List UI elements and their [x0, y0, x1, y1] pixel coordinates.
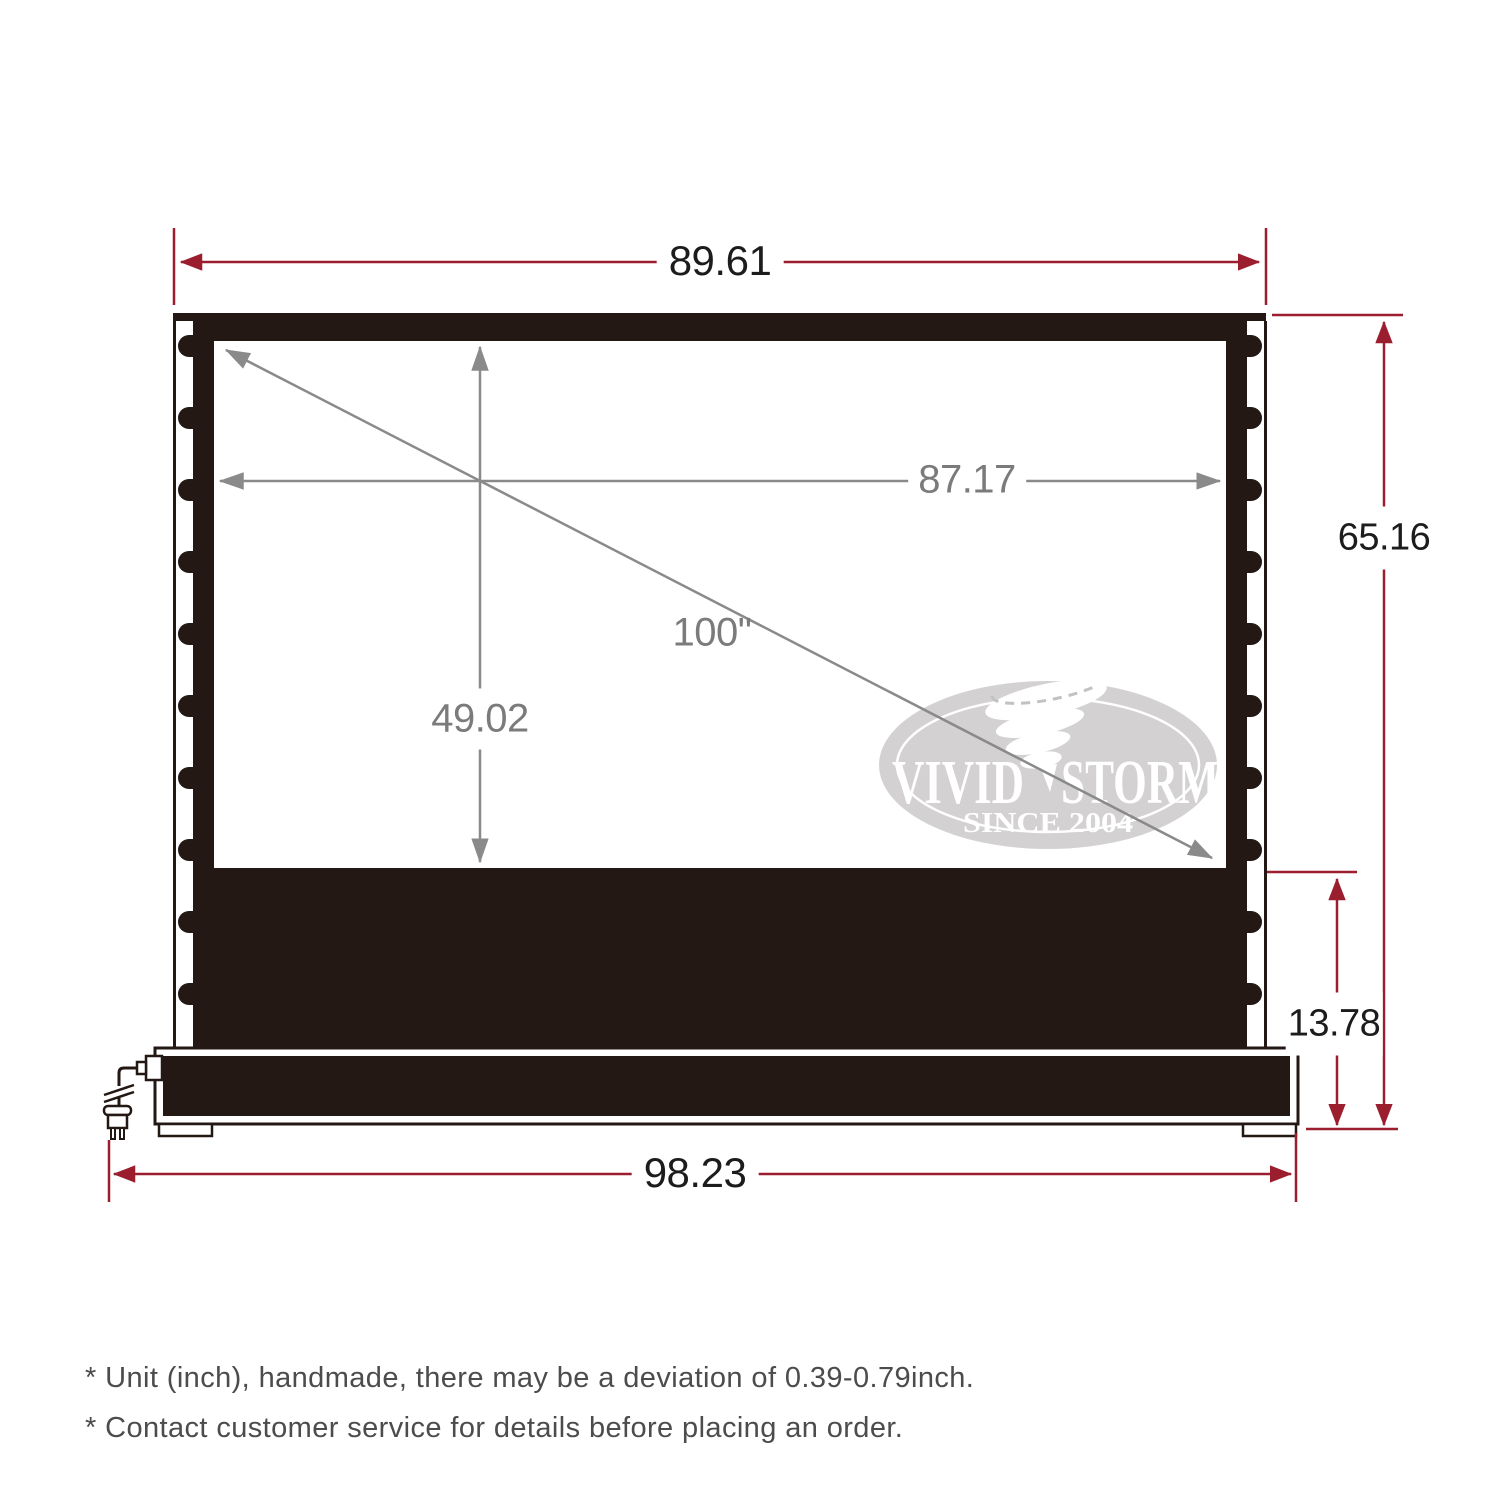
left-foot: [159, 1124, 212, 1136]
brand-logo: VIVID STORM SINCE 2004: [879, 671, 1219, 849]
label-top-width: 89.61: [657, 237, 784, 285]
logo-brand-left: VIVID: [892, 749, 1024, 817]
label-viewing-height: 49.02: [421, 689, 539, 750]
label-diagonal: 100": [673, 611, 752, 656]
label-viewing-width: 87.17: [908, 458, 1026, 503]
cord-segment-upper: [119, 1068, 137, 1086]
power-inlet: [146, 1056, 162, 1080]
logo-brand-right: STORM: [1061, 749, 1219, 817]
left-strap-edge: [173, 321, 176, 1048]
top-bar: [193, 313, 1247, 341]
power-plug-icon: [104, 1106, 131, 1139]
screen-dimension-diagram: VIVID STORM SINCE 2004: [0, 0, 1500, 1500]
base-housing: [163, 1056, 1290, 1116]
right-foot: [1243, 1124, 1296, 1136]
bottom-black-drop: [193, 868, 1247, 1048]
logo-tagline: SINCE 2004: [963, 808, 1133, 839]
diagram-artwork: VIVID STORM SINCE 2004: [0, 0, 1500, 1500]
label-base-width: 98.23: [632, 1149, 759, 1197]
dim-line-diagonal: [226, 350, 1212, 858]
power-inlet-nub: [137, 1062, 146, 1074]
right-strap-edge: [1264, 321, 1267, 1048]
footnote-unit: * Unit (inch), handmade, there may be a …: [85, 1362, 974, 1395]
power-cord: [104, 1056, 162, 1139]
gray-dimension-lines: [220, 347, 1220, 862]
label-total-height: 65.16: [1334, 507, 1435, 570]
label-base-height: 13.78: [1286, 993, 1383, 1056]
footnote-contact: * Contact customer service for details b…: [85, 1412, 903, 1445]
